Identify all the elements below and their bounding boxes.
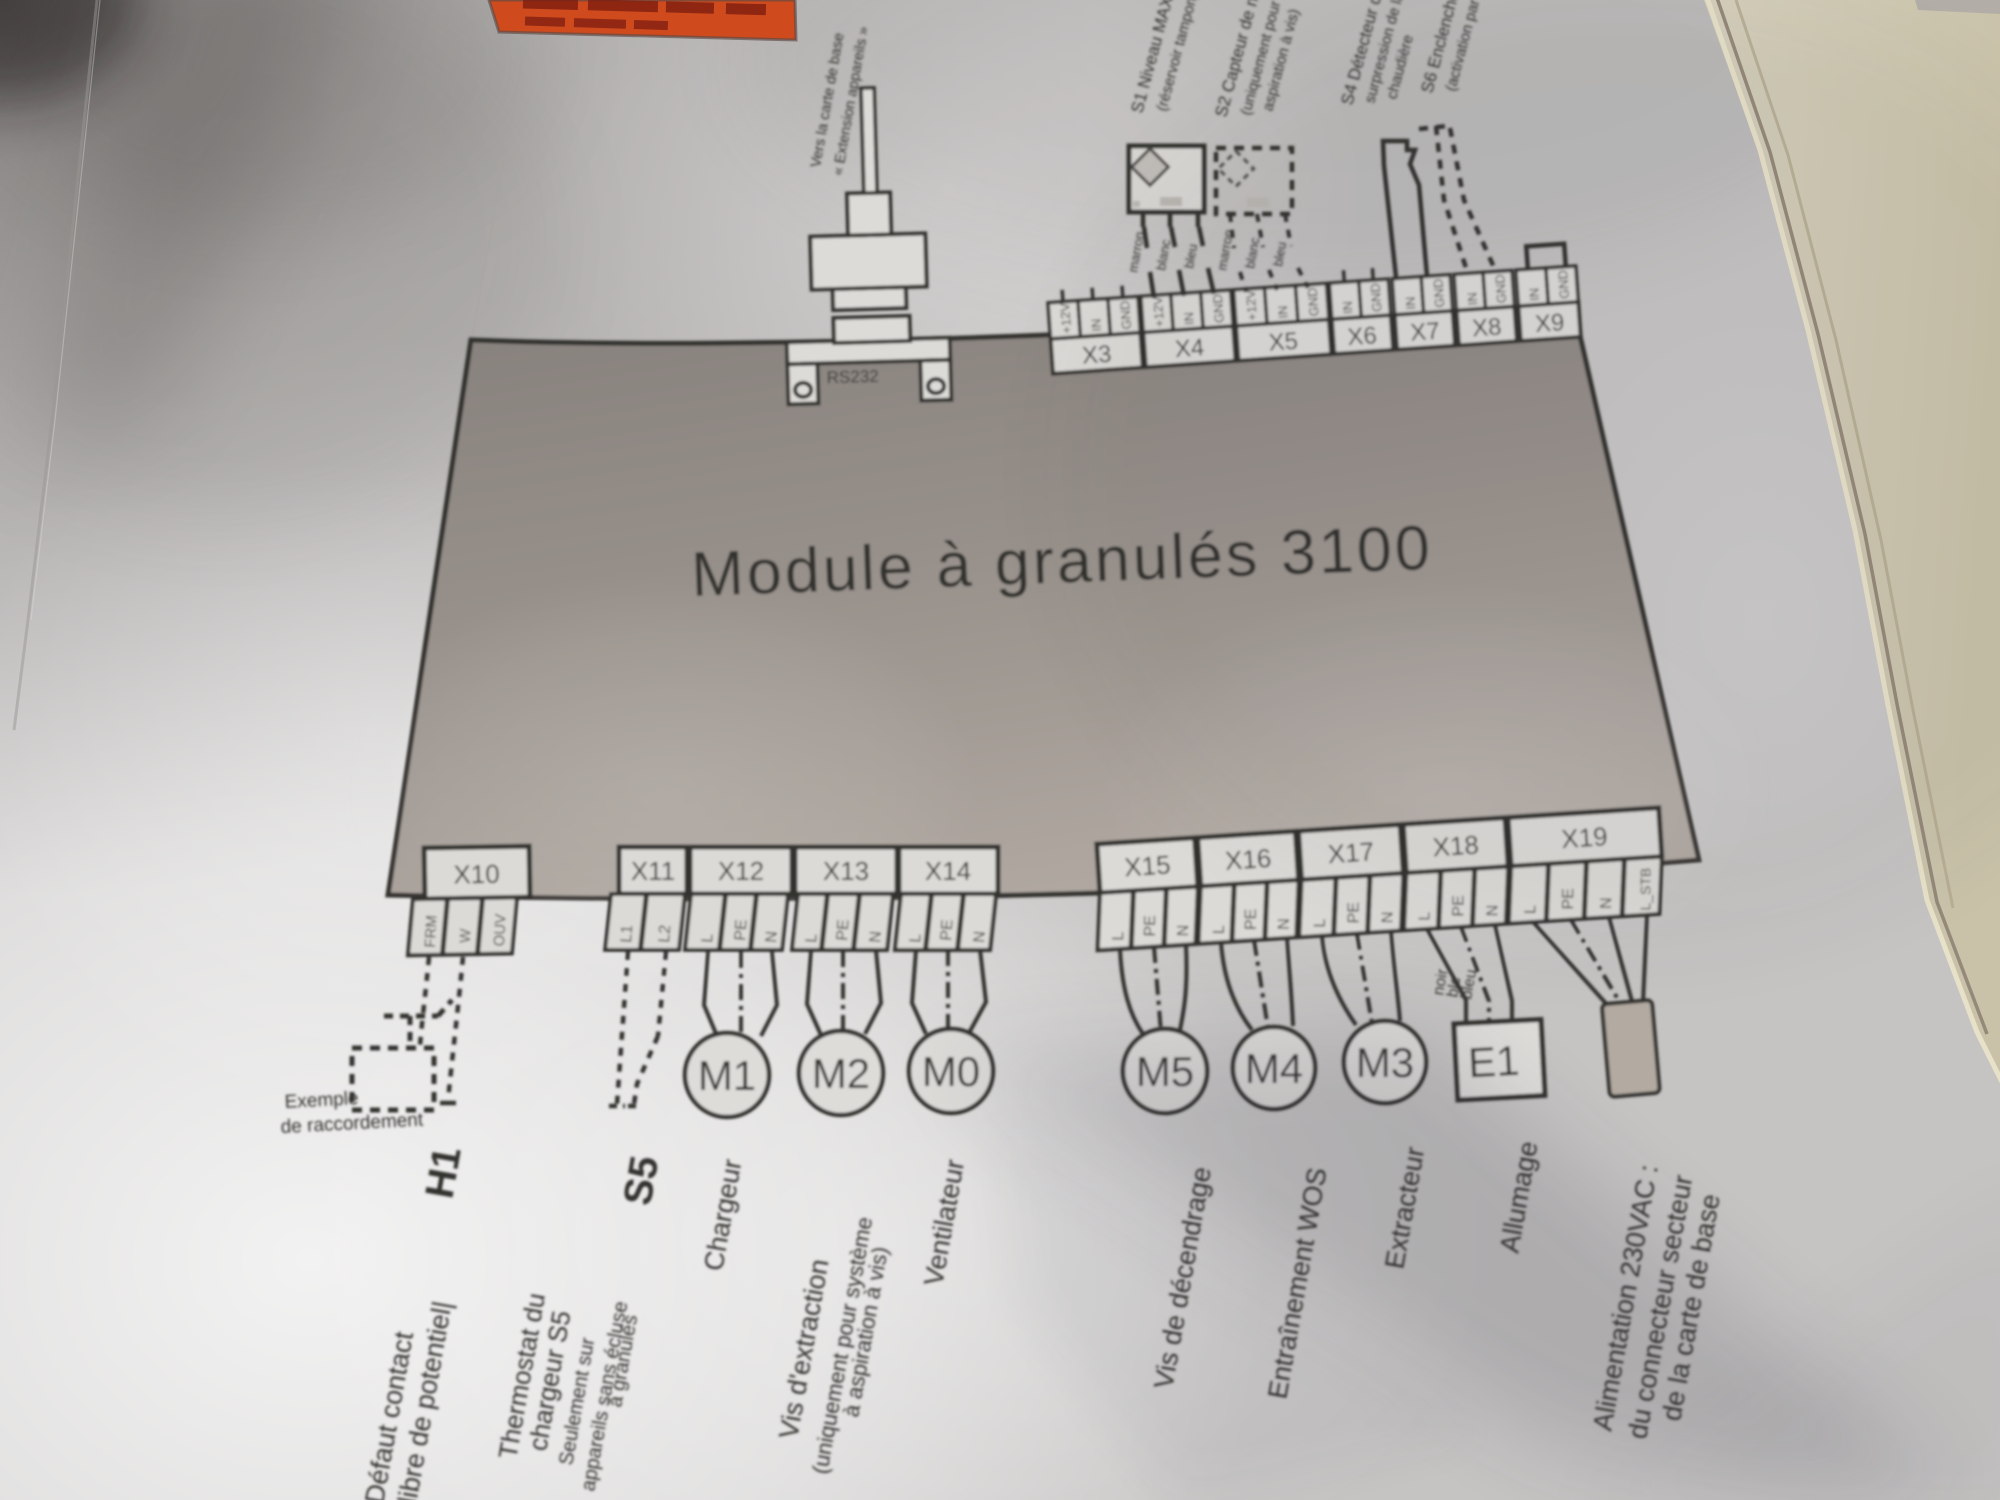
svg-text:RS232: RS232 (826, 367, 878, 387)
svg-text:X11: X11 (631, 856, 675, 886)
svg-text:L1: L1 (618, 924, 636, 943)
svg-text:M1: M1 (698, 1052, 756, 1099)
svg-text:L: L (1312, 919, 1329, 928)
svg-text:+12V: +12V (1057, 302, 1074, 334)
svg-text:FRM: FRM (422, 915, 441, 948)
svg-text:X16: X16 (1224, 843, 1272, 876)
svg-text:PE: PE (732, 919, 750, 941)
svg-text:L: L (1211, 925, 1228, 934)
svg-text:M2: M2 (812, 1050, 870, 1097)
svg-text:PE: PE (834, 919, 852, 941)
svg-text:X12: X12 (718, 856, 764, 886)
svg-text:X13: X13 (823, 856, 869, 886)
svg-text:N: N (1276, 918, 1293, 930)
svg-text:X15: X15 (1123, 849, 1171, 882)
svg-text:L: L (907, 933, 925, 943)
svg-text:L: L (1110, 932, 1127, 941)
svg-text:N: N (1175, 925, 1192, 937)
svg-text:PE: PE (938, 919, 956, 941)
svg-text:X10: X10 (453, 859, 500, 890)
svg-text:N: N (763, 931, 781, 944)
svg-text:PE: PE (1142, 915, 1159, 936)
svg-text:PE: PE (1345, 902, 1362, 923)
svg-text:L: L (803, 933, 821, 943)
svg-text:PE: PE (1243, 909, 1260, 930)
svg-text:N: N (1380, 912, 1397, 924)
svg-text:OUV: OUV (491, 913, 510, 946)
svg-text:S5: S5 (616, 1153, 668, 1209)
svg-text:L: L (699, 933, 717, 943)
svg-text:N: N (971, 931, 989, 944)
svg-text:H1: H1 (418, 1144, 470, 1202)
svg-text:W: W (457, 928, 475, 944)
svg-text:L2: L2 (656, 924, 674, 943)
svg-text:N: N (867, 931, 885, 944)
svg-text:Exemple: Exemple (284, 1088, 359, 1113)
svg-text:X14: X14 (925, 856, 971, 886)
